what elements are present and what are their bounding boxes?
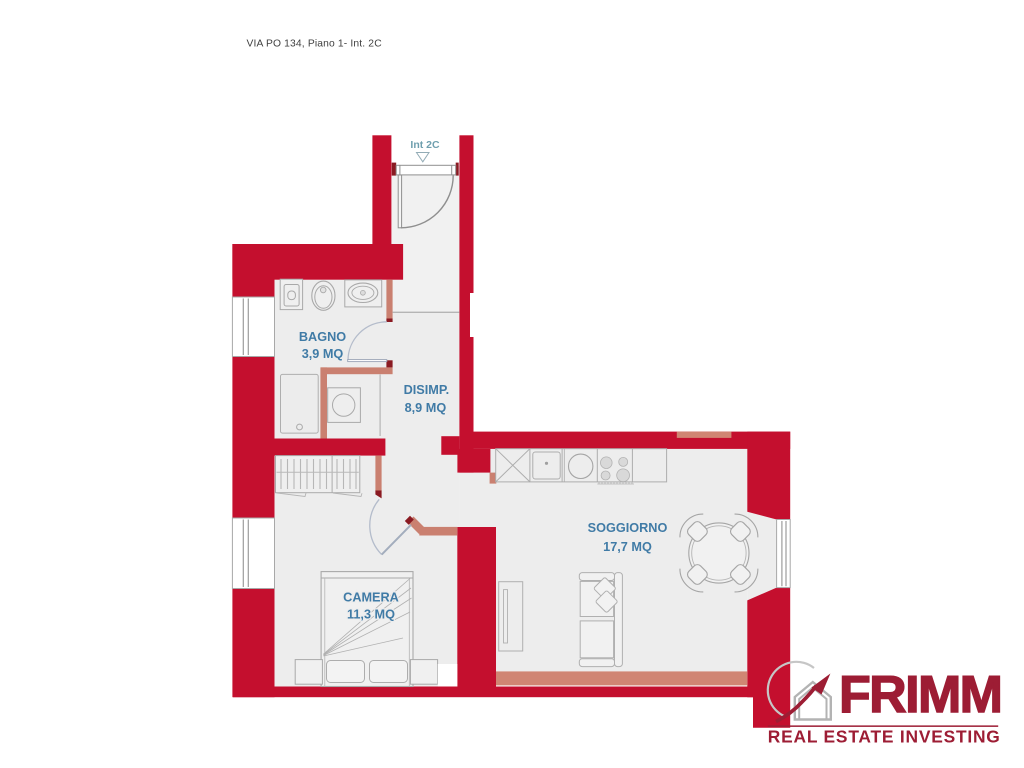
svg-text:17,7 MQ: 17,7 MQ (603, 540, 652, 554)
svg-text:11,3 MQ: 11,3 MQ (347, 608, 395, 622)
svg-text:8,9 MQ: 8,9 MQ (405, 401, 447, 415)
svg-text:BAGNO: BAGNO (299, 330, 346, 344)
svg-text:3,9 MQ: 3,9 MQ (302, 347, 344, 361)
svg-text:SOGGIORNO: SOGGIORNO (588, 521, 668, 535)
svg-text:Int 2C: Int 2C (410, 139, 440, 151)
svg-text:DISIMP.: DISIMP. (404, 383, 450, 397)
svg-text:REAL ESTATE INVESTING: REAL ESTATE INVESTING (768, 727, 1001, 747)
svg-text:CAMERA: CAMERA (343, 591, 399, 605)
svg-text:VIA PO 134, Piano 1- Int. 2C: VIA PO 134, Piano 1- Int. 2C (247, 39, 383, 50)
svg-text:FRIMM: FRIMM (839, 666, 1001, 724)
